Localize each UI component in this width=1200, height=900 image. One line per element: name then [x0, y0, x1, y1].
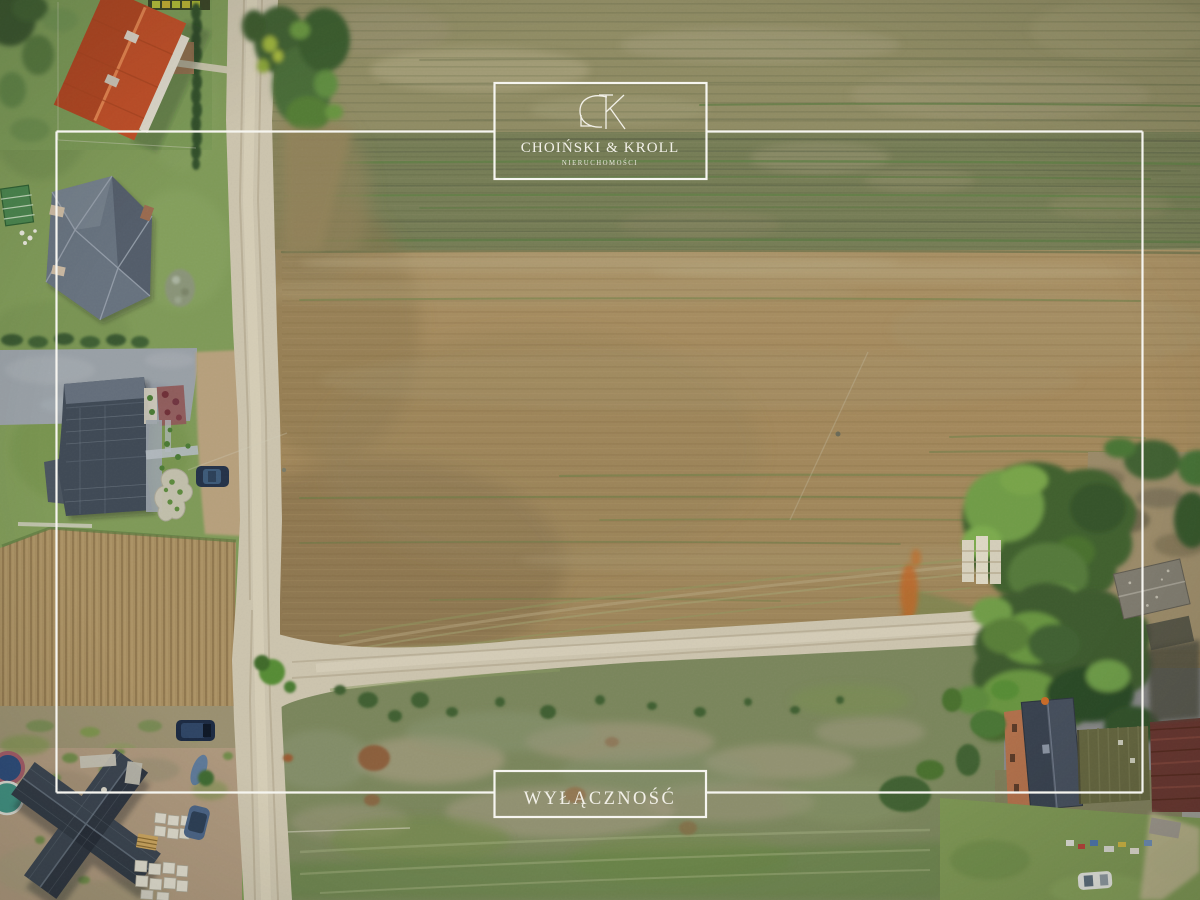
svg-text:NIERUCHOMOŚCI: NIERUCHOMOŚCI: [562, 159, 638, 167]
svg-text:CHOIŃSKI & KROLL: CHOIŃSKI & KROLL: [521, 139, 679, 156]
svg-text:WYŁĄCZNOŚĆ: WYŁĄCZNOŚĆ: [524, 787, 676, 809]
